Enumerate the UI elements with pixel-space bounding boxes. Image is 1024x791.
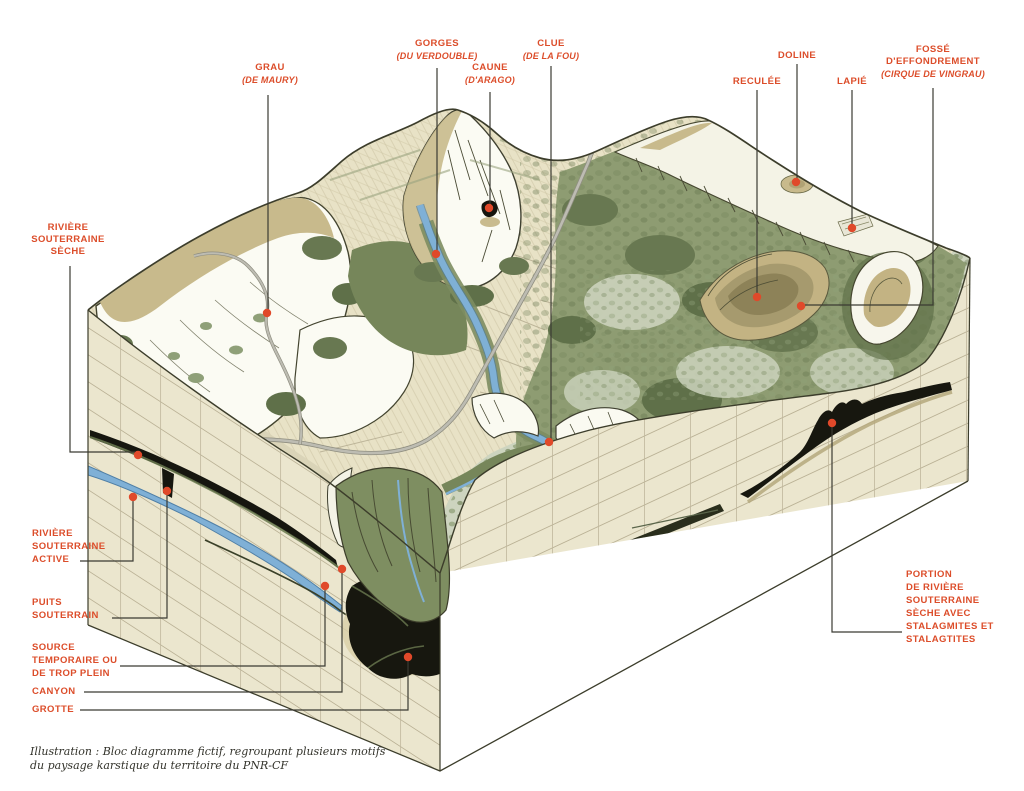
label-reculee-title: RECULÉE bbox=[733, 76, 781, 87]
label-puits-souterrain-title: PUITS SOUTERRAIN bbox=[32, 597, 99, 621]
dot-caune bbox=[485, 204, 493, 212]
label-clue-sub: (DE LA FOU) bbox=[523, 51, 579, 61]
label-canyon-title: CANYON bbox=[32, 686, 76, 697]
label-portion-riviere-title: PORTION DE RIVIÈRE SOUTERRAINE SÈCHE AVE… bbox=[906, 569, 994, 645]
label-gorges-title: GORGES bbox=[415, 38, 459, 49]
label-puits-souterrain: PUITS SOUTERRAIN bbox=[32, 596, 142, 622]
dot-canyon bbox=[338, 565, 346, 573]
label-grau-title: GRAU bbox=[255, 62, 285, 73]
label-fosse-title: FOSSÉ D'EFFONDREMENT bbox=[886, 44, 980, 67]
cirque-fosse bbox=[842, 252, 934, 360]
block-illustration bbox=[0, 0, 1024, 791]
dot-fosse bbox=[797, 302, 805, 310]
dot-lapie bbox=[848, 224, 856, 232]
label-fosse-sub: (CIRQUE DE VINGRAU) bbox=[881, 69, 985, 79]
label-clue-title: CLUE bbox=[537, 38, 564, 49]
label-doline: DOLINE bbox=[757, 50, 837, 62]
dot-grau bbox=[263, 309, 271, 317]
dot-riviere-seche bbox=[134, 451, 142, 459]
label-canyon: CANYON bbox=[32, 685, 132, 698]
dot-portion bbox=[828, 419, 836, 427]
label-riviere-souterraine-active-title: RIVIÈRE SOUTERRAINE ACTIVE bbox=[32, 528, 106, 565]
dot-doline bbox=[792, 178, 800, 186]
label-gorges-sub: (DU VERDOUBLE) bbox=[397, 51, 478, 61]
label-caune-title: CAUNE bbox=[472, 62, 508, 73]
label-grotte-title: GROTTE bbox=[32, 704, 74, 715]
dot-riviere-active bbox=[129, 493, 137, 501]
dot-reculee bbox=[753, 293, 761, 301]
label-reculee: RECULÉE bbox=[712, 76, 802, 88]
figure-caption: Illustration : Bloc diagramme fictif, re… bbox=[30, 745, 385, 773]
label-riviere-souterraine-seche: RIVIÈRE SOUTERRAINE SÈCHE bbox=[13, 222, 123, 258]
label-source-temporaire-title: SOURCE TEMPORAIRE OU DE TROP PLEIN bbox=[32, 642, 117, 679]
label-portion-riviere: PORTION DE RIVIÈRE SOUTERRAINE SÈCHE AVE… bbox=[906, 568, 1016, 646]
dot-source bbox=[321, 582, 329, 590]
dot-puits bbox=[163, 487, 171, 495]
label-riviere-souterraine-seche-title: RIVIÈRE SOUTERRAINE SÈCHE bbox=[31, 222, 105, 257]
label-doline-title: DOLINE bbox=[778, 50, 816, 61]
label-grotte: GROTTE bbox=[32, 703, 132, 716]
label-caune-sub: (D'ARAGO) bbox=[465, 75, 515, 85]
label-fosse: FOSSÉ D'EFFONDREMENT(CIRQUE DE VINGRAU) bbox=[858, 44, 1008, 81]
label-caune: CAUNE(D'ARAGO) bbox=[440, 62, 540, 87]
label-clue: CLUE(DE LA FOU) bbox=[501, 38, 601, 63]
dot-grotte bbox=[404, 653, 412, 661]
dot-gorges bbox=[432, 250, 440, 258]
label-source-temporaire: SOURCE TEMPORAIRE OU DE TROP PLEIN bbox=[32, 641, 152, 680]
label-riviere-souterraine-active: RIVIÈRE SOUTERRAINE ACTIVE bbox=[32, 527, 142, 566]
label-gorges: GORGES(DU VERDOUBLE) bbox=[377, 38, 497, 63]
dot-clue bbox=[545, 438, 553, 446]
cave-blob bbox=[446, 607, 530, 663]
karst-block-diagram-figure: GRAU(DE MAURY) GORGES(DU VERDOUBLE) CAUN… bbox=[0, 0, 1024, 791]
label-grau: GRAU(DE MAURY) bbox=[215, 62, 325, 87]
label-grau-sub: (DE MAURY) bbox=[242, 75, 298, 85]
